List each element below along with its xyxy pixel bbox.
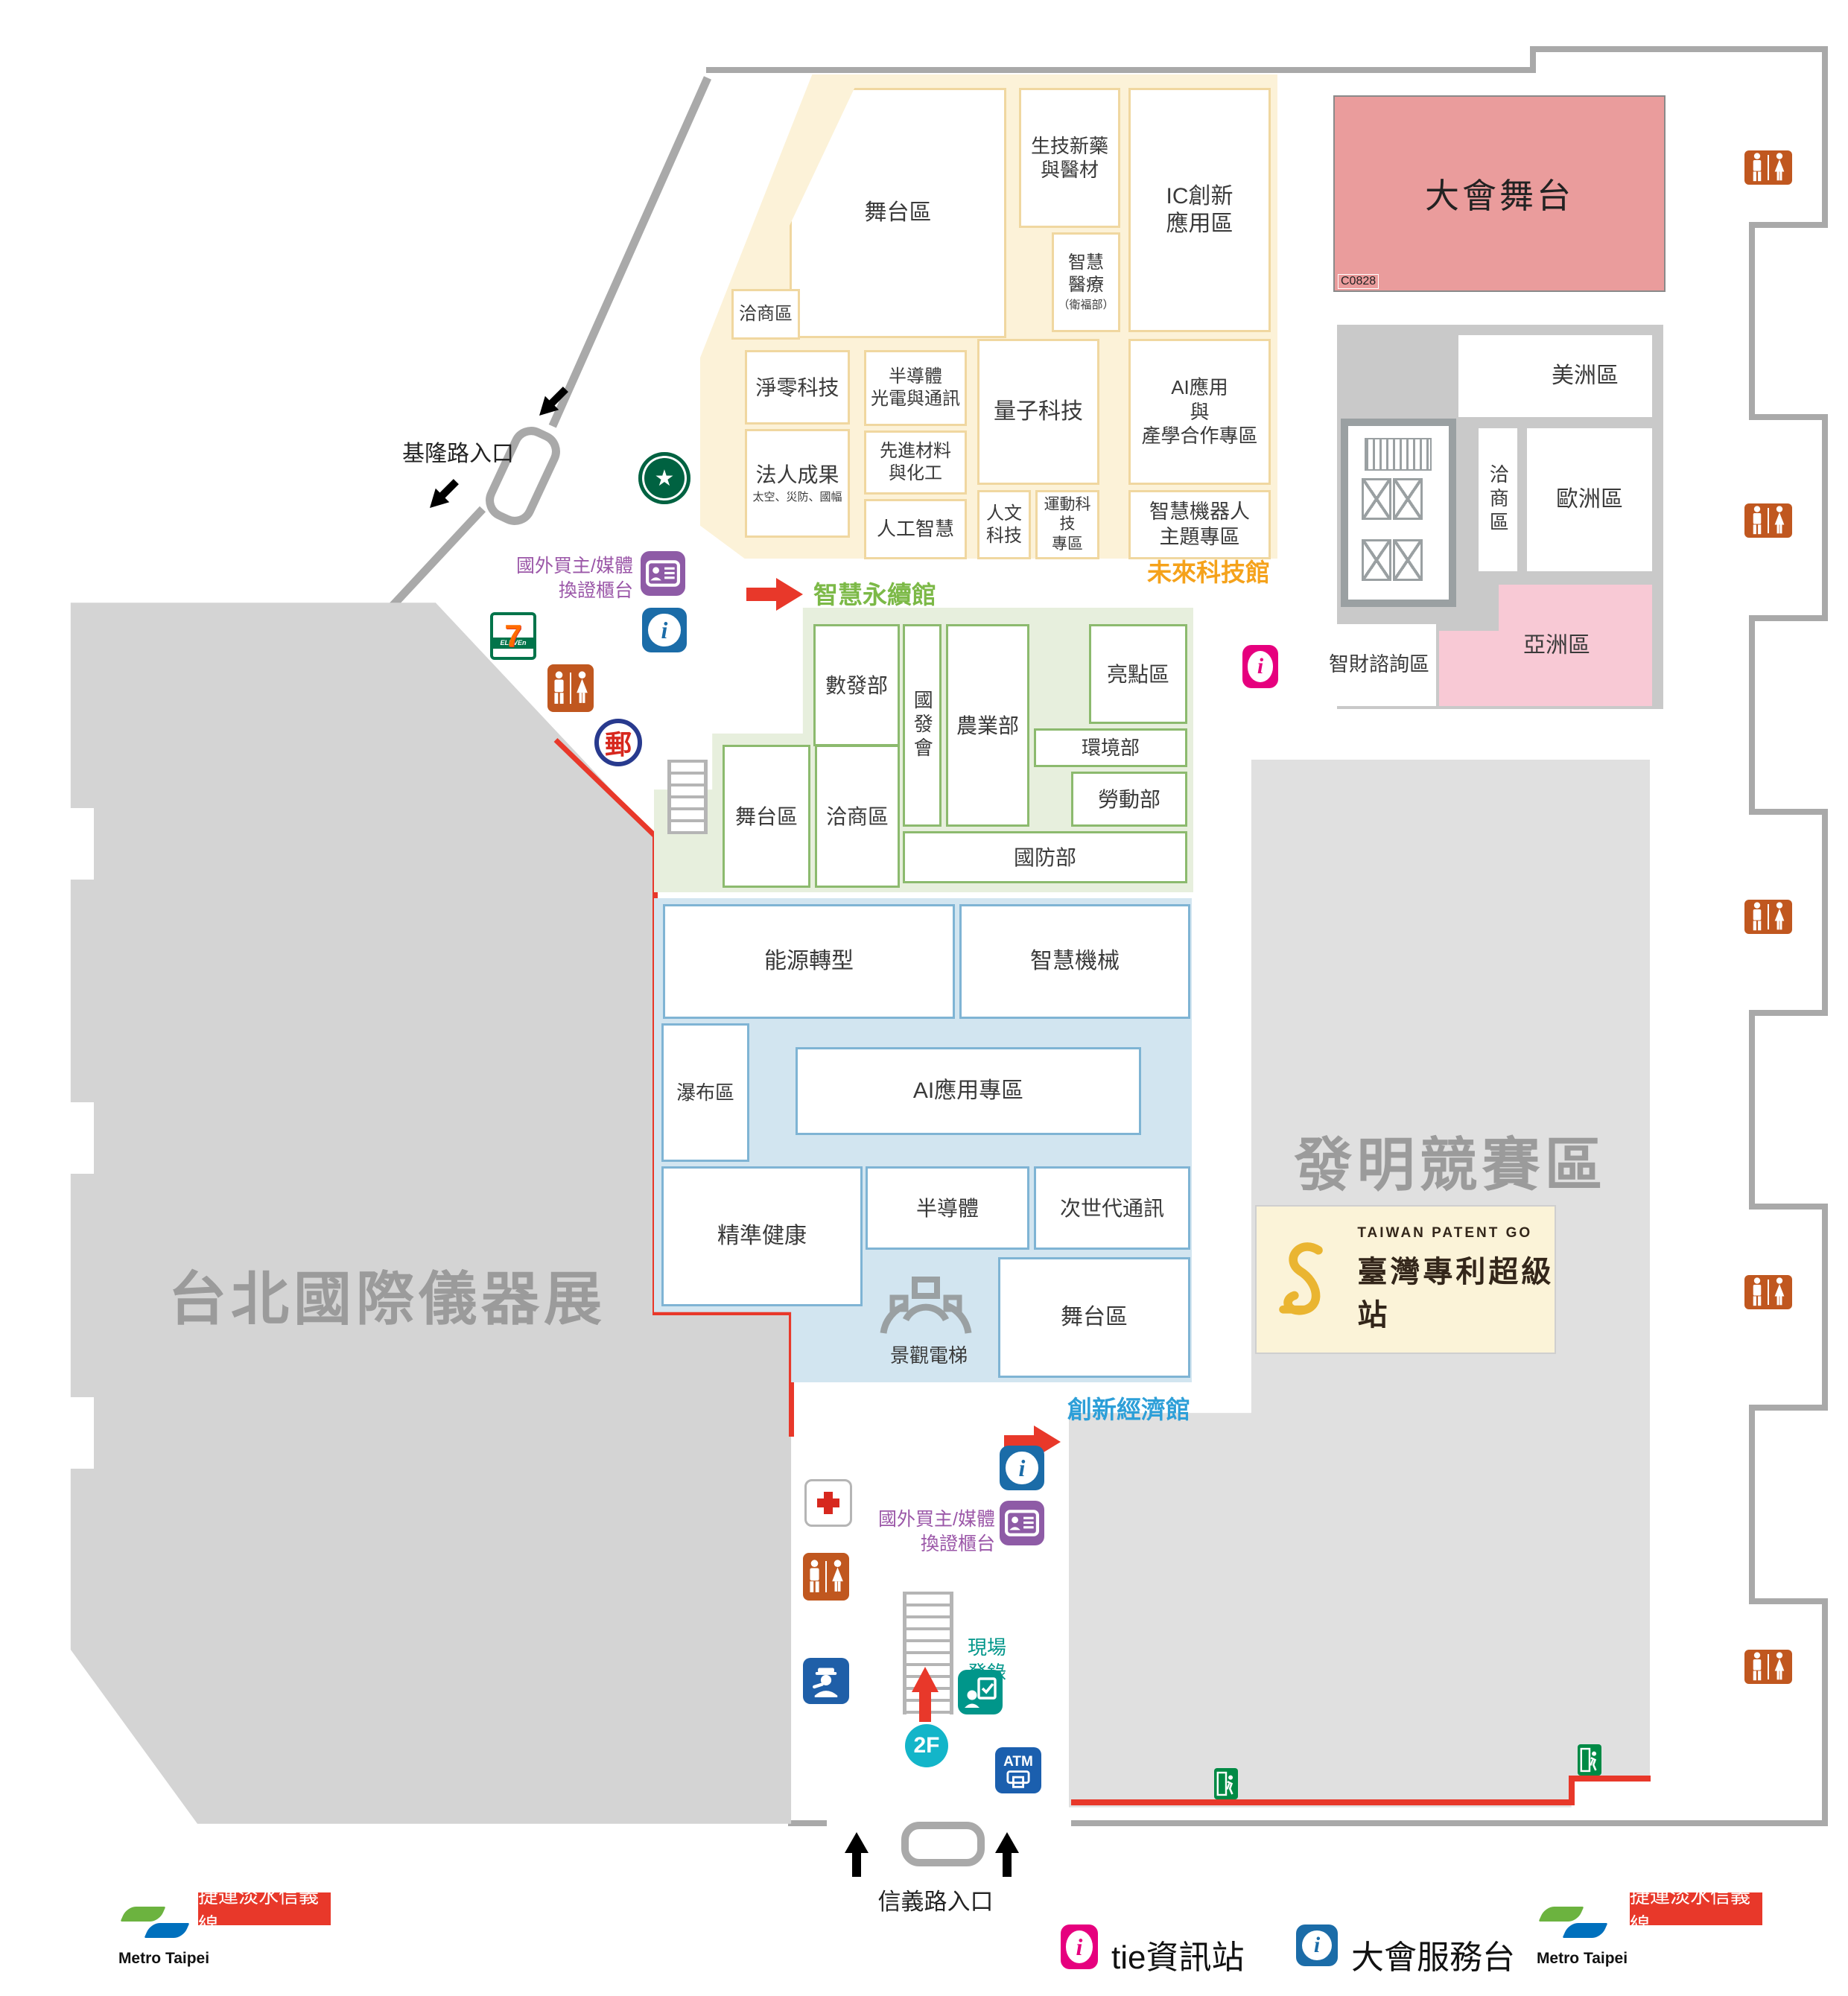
room-ai-academia: AI應用 與 產學合作專區 [1128, 339, 1271, 485]
room-ic: IC創新 應用區 [1128, 88, 1271, 332]
room-ip-consult: 智財諮詢區 [1322, 624, 1436, 706]
room-semi: 半導體 [866, 1166, 1029, 1250]
wall-r9 [1822, 809, 1828, 1016]
restroom-icon [1744, 150, 1792, 185]
restroom-icon [1744, 1650, 1792, 1684]
room-waterfall: 瀑布區 [661, 1023, 749, 1162]
entrance-label-xinyi: 信義路入口 [871, 1883, 1000, 1916]
wall-top-left [706, 67, 1536, 73]
room-moda: 數發部 [813, 624, 900, 746]
info-icon: i [1296, 1925, 1338, 1966]
room-netzero: 淨零科技 [745, 350, 850, 425]
room-defense: 國防部 [903, 831, 1187, 883]
restroom-icon [1744, 503, 1792, 538]
badge-exchange-icon [641, 551, 685, 596]
wall-r15 [1749, 1405, 1755, 1604]
floor-2f-badge: 2F [905, 1724, 948, 1767]
badge-counter-label: 國外買主/媒體 換證櫃台 [876, 1507, 995, 1556]
seven-eleven-7: 7 [493, 615, 533, 657]
expo-floorplan: 基隆路入口 台北國際儀器展 發明競賽區 TAIWAN PATENT GO 臺灣專… [0, 0, 1848, 1996]
room-negotiation-sustain: 洽商區 [815, 745, 900, 888]
stairs-icon [667, 760, 708, 834]
wall-r1 [1822, 46, 1828, 228]
room-labor: 勞動部 [1071, 772, 1187, 827]
metro-brand: Metro Taipei [1522, 1950, 1642, 1968]
hall-sustain-label: 智慧永續館 [813, 575, 936, 611]
red-line-bottom [1071, 1799, 1573, 1805]
medical-icon [804, 1479, 852, 1527]
metro-line-badge: 捷運淡水信義線 [1630, 1892, 1762, 1925]
post-office-icon: 郵 [594, 719, 642, 766]
restroom-icon [547, 664, 594, 712]
zone-invention-label: 發明競賽區 [1251, 1126, 1650, 1195]
up-arrow-icon [912, 1667, 939, 1722]
room-smart-medical: 智慧 醫療 （衛福部） [1052, 232, 1120, 332]
room-semi-opto: 半導體 光電與通訊 [864, 350, 967, 426]
room-america: 美洲區 [1458, 335, 1652, 417]
scenic-elevator-icon [870, 1262, 982, 1339]
zone-main-stage: 大會舞台 C0828 [1333, 95, 1666, 292]
legend-service-desk-label: 大會服務台 [1351, 1930, 1515, 1978]
room-materials: 先進材料 與化工 [864, 430, 967, 495]
wall-r13 [1822, 1204, 1828, 1411]
room-ndc: 國發會 [903, 624, 942, 827]
room-legal: 法人成果 太空、災防、國幅 [745, 429, 850, 538]
wall-r14 [1749, 1405, 1828, 1411]
entrance-arrow-up-icon [995, 1832, 1019, 1877]
room-negotiation-right: 洽商區 [1479, 428, 1517, 571]
wall-r11 [1749, 1010, 1755, 1210]
wall-bottom-right [1071, 1820, 1828, 1826]
wall-r12 [1749, 1204, 1828, 1210]
room-agri: 農業部 [946, 624, 1029, 827]
room-ai: 人工智慧 [864, 499, 967, 559]
room-stage-sustain: 舞台區 [723, 745, 810, 888]
wall-r3 [1749, 222, 1755, 420]
xinyi-entrance-door [901, 1822, 985, 1866]
exit-icon [1214, 1768, 1238, 1799]
starbucks-icon: ★ [638, 452, 690, 504]
metro-brand: Metro Taipei [104, 1950, 223, 1968]
wall-r6 [1749, 615, 1828, 621]
hall-economy-label: 創新經濟館 [1041, 1390, 1190, 1426]
wall-top-right [1533, 46, 1828, 52]
room-robot: 智慧機器人 主題專區 [1128, 490, 1271, 559]
red-line-step [1569, 1779, 1575, 1805]
info-icon: i [1000, 1446, 1044, 1490]
elevator-icon [1362, 478, 1391, 520]
room-env: 環境部 [1034, 728, 1187, 767]
patent-go-card: TAIWAN PATENT GO 臺灣專利超級站 [1255, 1205, 1556, 1354]
wall-bottom-left [788, 1820, 827, 1826]
scenic-elevator-label: 景觀電梯 [873, 1341, 985, 1368]
notch [45, 1397, 94, 1469]
keelung-road [549, 76, 711, 428]
entrance-arrow-up-icon [845, 1832, 869, 1877]
onsite-reg-icon [958, 1670, 1003, 1714]
room-health: 精準健康 [661, 1166, 863, 1306]
room-quantum: 量子科技 [977, 339, 1099, 485]
tie-info-icon: i [1061, 1925, 1098, 1969]
badge-exchange-icon [1000, 1501, 1044, 1545]
room-biotech: 生技新藥 與醫材 [1019, 88, 1120, 228]
entrance-arrow-icon [422, 474, 463, 515]
info-icon: i [642, 608, 687, 652]
room-highlight: 亮點區 [1089, 624, 1187, 724]
wall-r16 [1749, 1598, 1828, 1604]
hall-future-label: 未來科技館 [1095, 553, 1270, 588]
wall-r4 [1749, 414, 1828, 420]
metro-logo [1537, 1904, 1612, 1948]
room-machine: 智慧機械 [959, 904, 1190, 1019]
elevator-core [1341, 419, 1456, 607]
patent-go-en: TAIWAN PATENT GO [1357, 1225, 1555, 1242]
security-icon [803, 1658, 849, 1704]
stair-hatch [1365, 438, 1432, 471]
legend-tie-label: tie資訊站 [1111, 1930, 1244, 1978]
badge-counter-label: 國外買主/媒體 換證櫃台 [514, 554, 633, 603]
room-europe: 歐洲區 [1527, 428, 1652, 571]
metro-logo [119, 1904, 194, 1948]
tie-info-icon: i [1242, 645, 1278, 688]
stage-booth-code: C0828 [1338, 274, 1379, 289]
room-energy: 能源轉型 [663, 904, 955, 1019]
elevator-icon [1362, 539, 1391, 581]
room-humanities: 人文 科技 [977, 490, 1031, 559]
room-negotiation-future: 洽商區 [731, 289, 800, 340]
room-stage-economy: 舞台區 [998, 1257, 1190, 1378]
restroom-icon [1744, 900, 1792, 934]
wall-r2 [1749, 222, 1828, 228]
elevator-icon [1393, 478, 1423, 520]
room-ai-zone: AI應用專區 [796, 1047, 1141, 1135]
patent-go-logo-icon [1274, 1231, 1341, 1328]
elevator-icon [1393, 539, 1423, 581]
room-sports: 運動科技 專區 [1035, 490, 1099, 559]
wall-r8 [1749, 809, 1828, 815]
metro-line-badge: 捷運淡水信義線 [198, 1892, 331, 1925]
entrance-label-keelung: 基隆路入口 [402, 435, 536, 468]
zone-instrument-show-label: 台北國際儀器展 [89, 1260, 685, 1329]
red-line-bottom2 [1569, 1776, 1651, 1782]
seven-eleven-icon: ELEVEn 7 [490, 612, 536, 660]
atm-icon: ATM [995, 1747, 1041, 1793]
notch [45, 1102, 94, 1174]
wall-r5 [1822, 414, 1828, 621]
notch [45, 808, 94, 880]
exit-icon [1578, 1744, 1601, 1776]
room-nextgen: 次世代通訊 [1034, 1166, 1190, 1250]
patent-go-zh: 臺灣專利超級站 [1357, 1247, 1555, 1334]
wall-r7 [1749, 615, 1755, 815]
restroom-icon [803, 1553, 849, 1601]
wall-r10 [1749, 1010, 1828, 1016]
restroom-icon [1744, 1275, 1792, 1309]
wall-r17 [1822, 1598, 1828, 1826]
